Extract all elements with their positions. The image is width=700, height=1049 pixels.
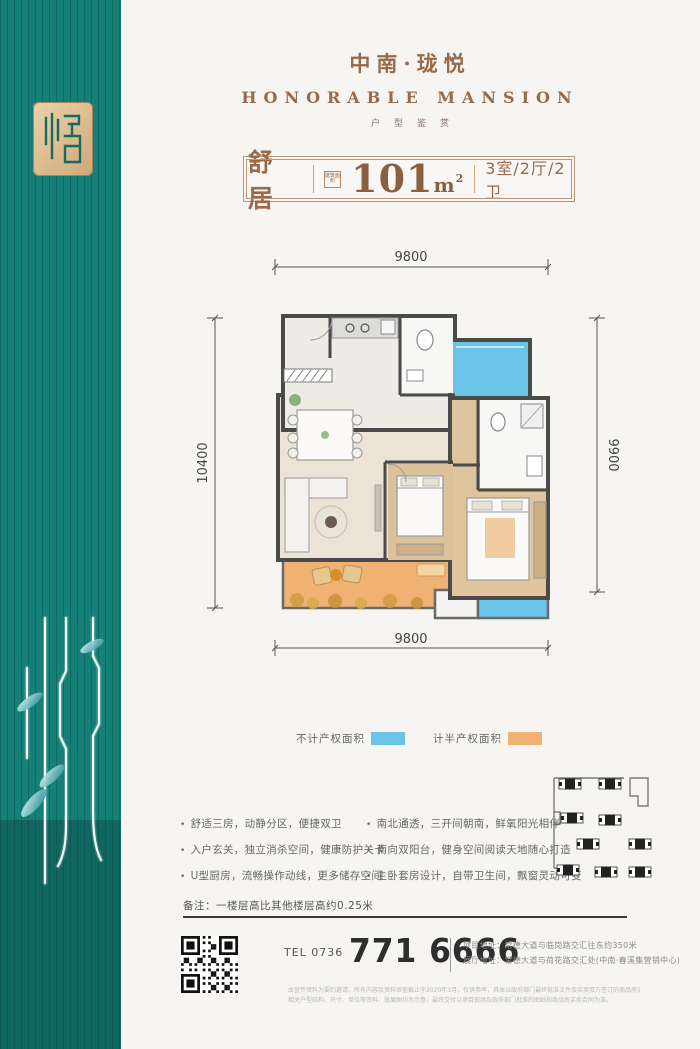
note-line: 备注：一楼层高比其他楼层高约0.25米	[183, 898, 373, 913]
disclaimer-line: 相关户型结构、尺寸、单位等资料、效果图均为示意，最终交付以项目现场及政府部门批准…	[288, 996, 640, 1006]
tel-label: TEL 0736	[284, 946, 343, 959]
showroom-address: 展厅地址：常德大道与荷花路交汇处(中南·春溪集营销中心)	[463, 953, 683, 968]
brand-tagline: 户型鉴赏	[130, 116, 690, 129]
unit-name: 舒居	[244, 143, 303, 215]
dim-bottom-label: 9800	[394, 632, 427, 647]
master-bedroom-furniture	[467, 498, 546, 580]
bedroom2-furniture	[388, 464, 453, 560]
feature-item: 入户玄关，独立消杀空间，健康防护关卡	[180, 842, 365, 857]
poster-page: 中南·珑悦 HONORABLE MANSION 户型鉴赏 舒居 建筑面积 101…	[0, 0, 700, 1049]
legend-swatch-blue	[371, 732, 405, 745]
legend-label: 计半产权面积	[433, 731, 502, 746]
floorplan-drawing: 9800 9800 10400 9900	[185, 250, 625, 695]
badge-divider	[313, 165, 314, 193]
feature-item: U型厨房，流畅操作动线，更多储存空间	[180, 868, 365, 883]
dining-furniture	[288, 410, 362, 460]
contact-divider	[450, 938, 451, 972]
brand-subtitle: HONORABLE MANSION	[130, 88, 690, 107]
dim-left-label: 10400	[196, 442, 211, 483]
disclaimer-block: 本宣传资料为要约邀请，所有内容及资料审查截止于2020年3月，仅供参考，具体以政…	[288, 986, 640, 1005]
bath-north-fixtures	[402, 318, 453, 393]
balcony-north-no-area	[450, 340, 530, 398]
site-buildings	[557, 779, 651, 878]
seal-glyph-icon	[41, 110, 85, 168]
legend-item-half-property: 计半产权面积	[433, 731, 542, 746]
header-block: 中南·珑悦 HONORABLE MANSION 户型鉴赏	[130, 48, 690, 129]
unit-area-value: 101m2	[351, 160, 464, 198]
project-address: 项目地址：常德大道与临岗路交汇往东约350米	[463, 938, 683, 953]
decorative-lineart-yue	[0, 598, 121, 918]
brand-seal	[33, 102, 93, 176]
area-legend: 不计产权面积 计半产权面积	[296, 731, 542, 746]
dim-right-label: 9900	[605, 438, 620, 471]
bath-master-fixtures	[480, 400, 546, 488]
legend-swatch-orange	[508, 732, 542, 745]
legend-item-no-property: 不计产权面积	[296, 731, 405, 746]
badge-divider	[474, 165, 475, 193]
unit-area-unit: m2	[433, 173, 464, 197]
sidebar-panel	[0, 0, 121, 1049]
legend-label: 不计产权面积	[296, 731, 365, 746]
unit-rooms: 3室/2厅/2卫	[485, 155, 574, 203]
area-chip-label: 建筑面积	[324, 171, 342, 188]
feature-list-left: 舒适三房，动静分区，便捷双卫入户玄关，独立消杀空间，健康防护关卡U型厨房，流畅操…	[180, 816, 365, 894]
qr-code	[181, 936, 238, 993]
site-key-plan	[538, 764, 668, 886]
feature-item: 舒适三房，动静分区，便捷双卫	[180, 816, 365, 831]
dim-top-label: 9800	[394, 250, 427, 265]
kitchen-fixtures	[332, 318, 398, 338]
disclaimer-line: 本宣传资料为要约邀请，所有内容及资料审查截止于2020年3月，仅供参考，具体以政…	[288, 986, 640, 996]
brand-title: 中南·珑悦	[130, 48, 690, 78]
divider-rule	[183, 916, 627, 918]
address-block: 项目地址：常德大道与临岗路交汇往东约350米 展厅地址：常德大道与荷花路交汇处(…	[463, 938, 683, 968]
unit-badge: 舒居 建筑面积 101m2 3室/2厅/2卫	[243, 156, 575, 202]
